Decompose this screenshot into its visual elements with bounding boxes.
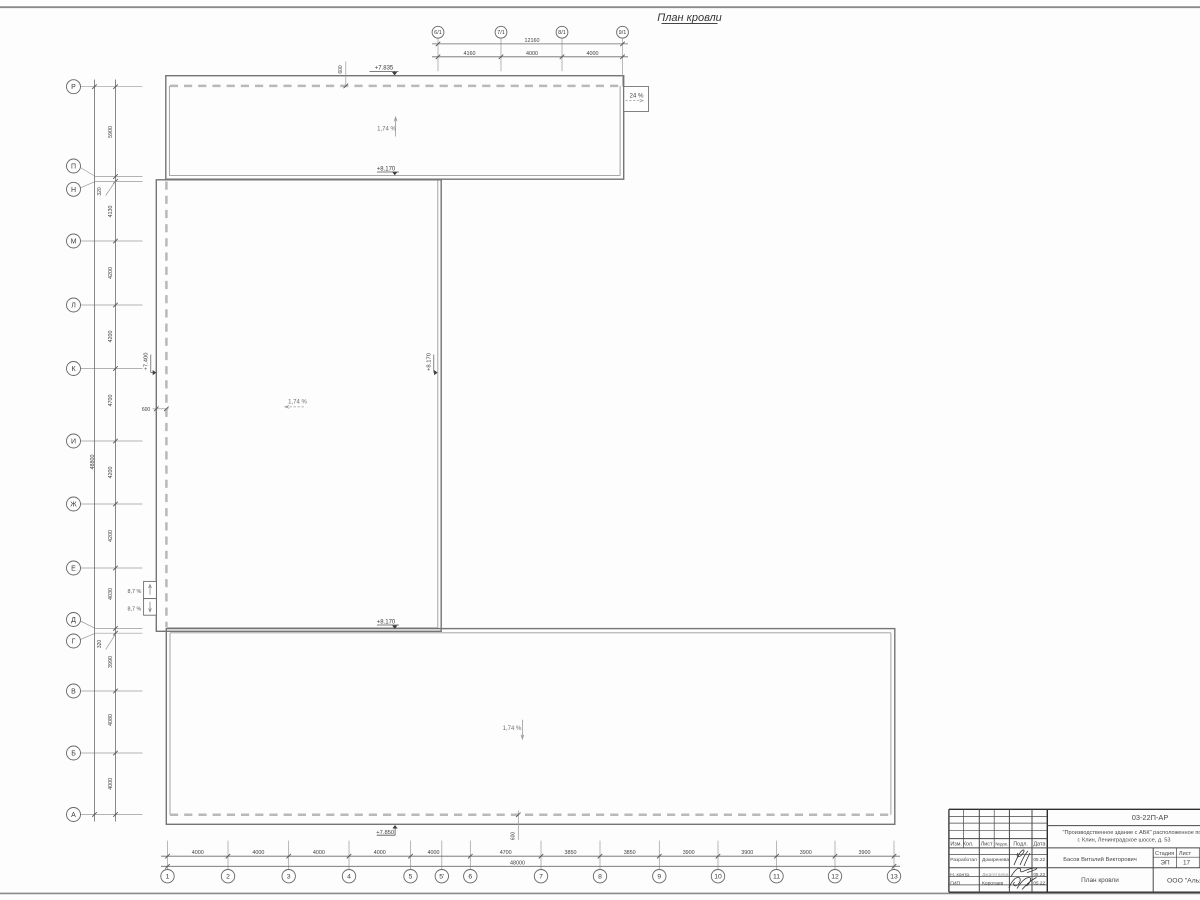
svg-text:4030: 4030 — [108, 588, 114, 600]
svg-text:3900: 3900 — [683, 850, 695, 856]
svg-text:4200: 4200 — [108, 267, 114, 279]
svg-text:12160: 12160 — [525, 38, 540, 44]
svg-text:М: М — [71, 239, 77, 246]
svg-text:6: 6 — [468, 874, 472, 881]
svg-text:05.22: 05.22 — [1033, 880, 1045, 885]
svg-text:1,74 %: 1,74 % — [377, 126, 396, 132]
svg-text:1: 1 — [166, 874, 170, 881]
svg-text:4000: 4000 — [587, 51, 599, 57]
svg-text:7/1: 7/1 — [497, 30, 505, 36]
svg-text:320: 320 — [97, 640, 103, 649]
svg-text:2: 2 — [226, 874, 230, 881]
svg-text:Л: Л — [71, 303, 76, 310]
svg-text:05.22: 05.22 — [1033, 872, 1045, 877]
svg-text:600: 600 — [142, 407, 151, 413]
svg-text:Басов Виталий Викторович: Басов Виталий Викторович — [1063, 856, 1137, 863]
svg-text:3900: 3900 — [800, 850, 812, 856]
svg-text:8/1: 8/1 — [558, 30, 566, 36]
svg-text:"Производственное здание с АБК: "Производственное здание с АБК" располож… — [1063, 830, 1200, 836]
svg-text:4000: 4000 — [108, 778, 114, 790]
svg-text:+7.400: +7.400 — [144, 353, 150, 371]
svg-text:9: 9 — [657, 874, 661, 881]
svg-text:ГИП: ГИП — [950, 880, 960, 886]
svg-text:Коротаев: Коротаев — [982, 880, 1004, 886]
svg-text:12: 12 — [831, 874, 839, 881]
svg-text:Разработал: Разработал — [950, 857, 977, 863]
svg-text:4200: 4200 — [108, 331, 114, 343]
svg-text:Н: Н — [71, 187, 76, 194]
svg-text:Ж: Ж — [70, 502, 77, 509]
svg-text:Е: Е — [71, 566, 76, 573]
svg-text:7: 7 — [539, 874, 543, 881]
svg-text:48800: 48800 — [90, 455, 96, 470]
svg-text:4000: 4000 — [526, 51, 538, 57]
svg-text:Г: Г — [72, 639, 76, 646]
svg-text:4200: 4200 — [108, 467, 114, 479]
svg-text:8: 8 — [598, 874, 602, 881]
svg-text:8,7 %: 8,7 % — [128, 589, 142, 595]
svg-text:5900: 5900 — [108, 126, 114, 138]
svg-text:17: 17 — [1183, 859, 1191, 866]
svg-text:13: 13 — [890, 874, 898, 881]
svg-text:+8.170: +8.170 — [377, 619, 396, 625]
svg-text:4160: 4160 — [464, 51, 476, 57]
svg-text:г. Клин, Ленинградское шоссе,: г. Клин, Ленинградское шоссе, д. 53 — [1077, 838, 1170, 844]
svg-text:В: В — [71, 689, 76, 696]
svg-text:320: 320 — [97, 187, 103, 196]
svg-text:4: 4 — [347, 874, 351, 881]
svg-text:11: 11 — [773, 874, 780, 881]
svg-text:План кровли: План кровли — [657, 12, 722, 24]
svg-text:5': 5' — [439, 874, 444, 881]
svg-text:+8.170: +8.170 — [427, 353, 433, 371]
svg-text:Р: Р — [71, 84, 76, 91]
svg-text:+8.170: +8.170 — [377, 166, 396, 172]
svg-text:Лист: Лист — [981, 842, 993, 848]
svg-text:8,7 %: 8,7 % — [128, 606, 142, 612]
svg-text:Джигетаева: Джигетаева — [982, 872, 1009, 878]
svg-text:3900: 3900 — [859, 850, 871, 856]
svg-text:05.22: 05.22 — [1033, 857, 1045, 862]
svg-text:Докиренева: Докиренева — [982, 857, 1009, 863]
svg-text:3850: 3850 — [624, 850, 636, 856]
svg-text:4000: 4000 — [192, 850, 204, 856]
svg-text:4700: 4700 — [500, 850, 512, 856]
svg-text:Стадия: Стадия — [1155, 851, 1174, 857]
svg-text:03-22П-АР: 03-22П-АР — [1132, 813, 1169, 822]
svg-text:Н. контр.: Н. контр. — [950, 872, 970, 878]
svg-text:Б: Б — [71, 751, 76, 758]
svg-text:ЭП: ЭП — [1160, 859, 1170, 866]
svg-text:10: 10 — [714, 874, 722, 881]
svg-text:4000: 4000 — [252, 850, 264, 856]
svg-text:Изм.: Изм. — [950, 842, 962, 848]
svg-text:9/1: 9/1 — [619, 30, 627, 36]
svg-text:4080: 4080 — [108, 714, 114, 726]
svg-text:Лист: Лист — [1179, 851, 1192, 857]
svg-text:48000: 48000 — [510, 860, 525, 866]
svg-text:3990: 3990 — [108, 656, 114, 668]
svg-text:План кровли: План кровли — [1081, 877, 1119, 884]
svg-text:3900: 3900 — [741, 850, 753, 856]
svg-text:4130: 4130 — [108, 206, 114, 218]
svg-text:600: 600 — [511, 832, 517, 841]
svg-text:4000: 4000 — [428, 850, 440, 856]
svg-text:ООО "Альянс": ООО "Альянс" — [1167, 877, 1200, 884]
svg-text:3850: 3850 — [565, 850, 577, 856]
svg-text:Подл.: Подл. — [1013, 842, 1028, 848]
svg-text:И: И — [71, 439, 76, 446]
svg-text:4000: 4000 — [313, 850, 325, 856]
svg-text:5: 5 — [409, 874, 413, 881]
svg-text:600: 600 — [338, 65, 344, 74]
svg-text:А: А — [71, 812, 76, 819]
svg-text:№док.: №док. — [995, 842, 1008, 847]
svg-text:24 %: 24 % — [629, 93, 644, 100]
svg-text:4200: 4200 — [108, 530, 114, 542]
svg-text:6/1: 6/1 — [434, 30, 442, 36]
svg-text:+7.835: +7.835 — [375, 65, 394, 71]
svg-text:Кол.: Кол. — [963, 842, 974, 848]
svg-text:4000: 4000 — [374, 850, 386, 856]
svg-text:1,74 %: 1,74 % — [503, 726, 522, 732]
svg-text:Дата: Дата — [1034, 842, 1046, 848]
svg-text:4700: 4700 — [108, 395, 114, 407]
svg-text:1,74 %: 1,74 % — [288, 400, 307, 406]
svg-text:Д: Д — [71, 617, 76, 624]
svg-text:П: П — [71, 164, 76, 171]
svg-text:3: 3 — [287, 874, 291, 881]
